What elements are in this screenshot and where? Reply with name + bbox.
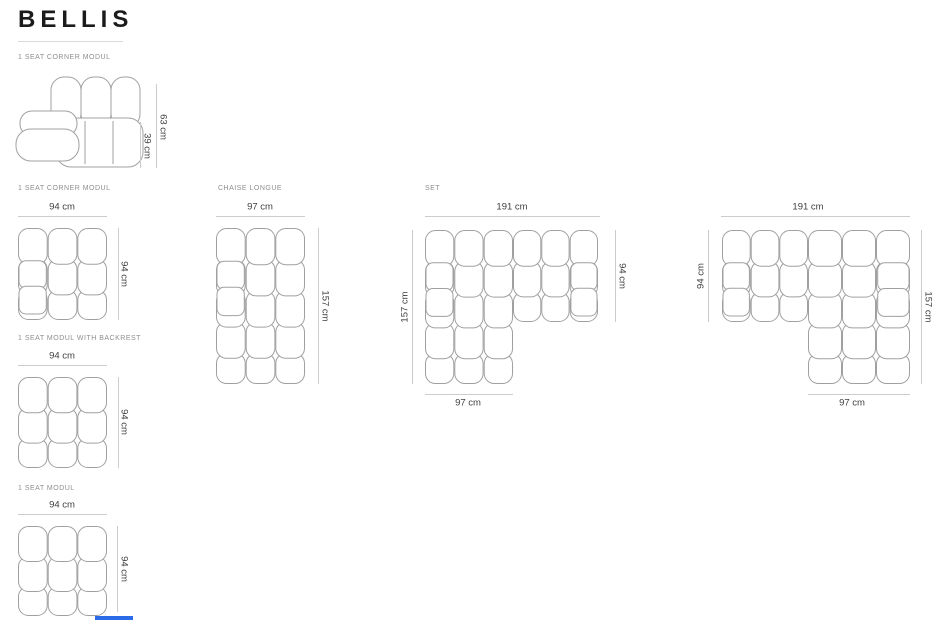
backrest-width-line bbox=[18, 365, 107, 366]
set-a-chaise-width-label: 97 cm bbox=[455, 398, 481, 409]
set-b-left-depth-label: 94 cm bbox=[696, 263, 707, 289]
backrest-module-drawing bbox=[18, 377, 107, 468]
set-b-total-width-line bbox=[721, 216, 910, 217]
set-a-drawing bbox=[425, 230, 598, 384]
seat-module-drawing bbox=[18, 526, 107, 616]
chaise-longue-drawing bbox=[216, 228, 305, 384]
chaise-width-label: 97 cm bbox=[247, 202, 273, 213]
chaise-depth-label: 157 cm bbox=[320, 290, 331, 321]
section-label-chaise: CHAISE LONGUE bbox=[218, 185, 282, 192]
set-b-right-depth-label: 157 cm bbox=[923, 291, 934, 322]
set-a-left-depth-label: 157 cm bbox=[400, 291, 411, 322]
corner-depth-label: 94 cm bbox=[119, 261, 130, 287]
set-b-total-width-label: 191 cm bbox=[792, 202, 823, 213]
title-underline bbox=[18, 41, 123, 42]
seat-width-line bbox=[18, 514, 107, 515]
backrest-depth-label: 94 cm bbox=[119, 409, 130, 435]
page-title: BELLIS bbox=[18, 6, 133, 34]
seat-depth-label: 94 cm bbox=[119, 556, 130, 582]
section-label-corner-top: 1 SEAT CORNER MODUL bbox=[18, 185, 110, 192]
set-b-left-depth-line bbox=[708, 230, 709, 322]
set-b-chaise-width-label: 97 cm bbox=[839, 398, 865, 409]
set-b-chaise-width-line bbox=[808, 394, 910, 395]
section-label-seat-module: 1 SEAT MODUL bbox=[18, 485, 75, 492]
accent-bar bbox=[95, 616, 133, 620]
set-a-total-width-line bbox=[425, 216, 600, 217]
set-a-total-width-label: 191 cm bbox=[496, 202, 527, 213]
chaise-width-line bbox=[216, 216, 305, 217]
dim-seat-height-label: 39 cm bbox=[142, 133, 153, 159]
dim-total-height-label: 63 cm bbox=[158, 114, 169, 140]
section-label-corner-side: 1 SEAT CORNER MODUL bbox=[18, 54, 110, 61]
set-a-left-depth-line bbox=[412, 230, 413, 384]
section-label-set: SET bbox=[425, 185, 440, 192]
backrest-width-label: 94 cm bbox=[49, 351, 75, 362]
seat-width-label: 94 cm bbox=[49, 500, 75, 511]
corner-module-side-drawing bbox=[14, 74, 146, 170]
set-b-drawing bbox=[722, 230, 910, 384]
corner-width-label: 94 cm bbox=[49, 202, 75, 213]
section-label-backrest-module: 1 SEAT MODUL WITH BACKREST bbox=[18, 335, 141, 342]
set-a-chaise-width-line bbox=[425, 394, 513, 395]
set-a-right-depth-label: 94 cm bbox=[617, 263, 628, 289]
corner-width-line bbox=[18, 216, 107, 217]
bellis-dimension-sheet: BELLIS 1 SEAT CORNER MODUL 39 cm 63 cm 1… bbox=[0, 0, 940, 620]
corner-module-top-drawing bbox=[18, 228, 107, 320]
